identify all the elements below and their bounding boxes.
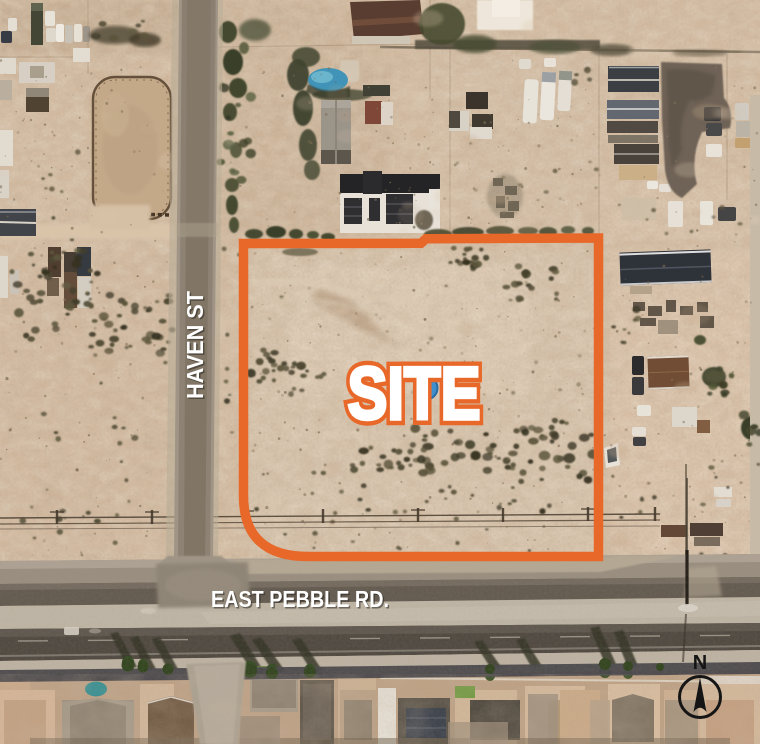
svg-text:HAVEN ST: HAVEN ST — [182, 291, 208, 399]
svg-text:SITE: SITE — [348, 351, 481, 435]
svg-text:EAST PEBBLE RD.: EAST PEBBLE RD. — [211, 586, 389, 612]
svg-text:N: N — [693, 652, 707, 674]
